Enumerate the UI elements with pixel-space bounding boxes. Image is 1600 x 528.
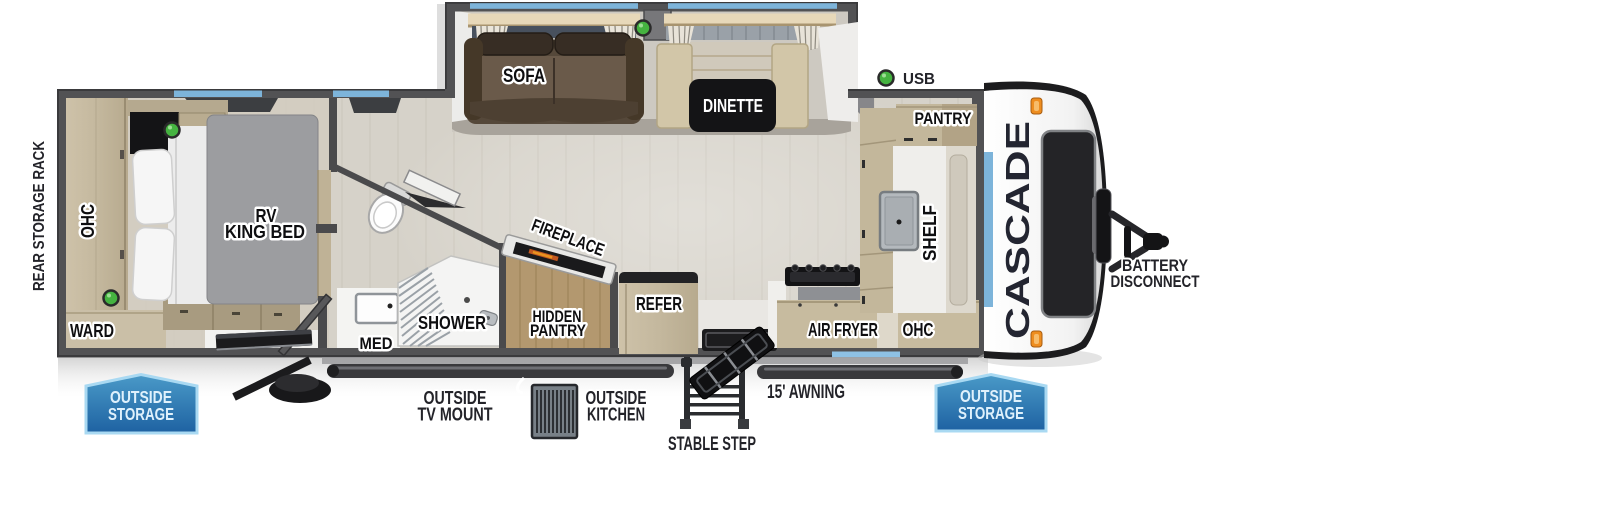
- svg-text:15' AWNING: 15' AWNING: [767, 382, 845, 403]
- svg-text:KITCHEN: KITCHEN: [587, 404, 645, 425]
- svg-text:TV MOUNT: TV MOUNT: [418, 404, 494, 425]
- svg-text:STORAGE: STORAGE: [108, 404, 174, 424]
- svg-text:CASCADE: CASCADE: [999, 121, 1036, 339]
- svg-text:PANTRY: PANTRY: [915, 110, 972, 128]
- svg-text:AIR FRYER: AIR FRYER: [808, 320, 878, 340]
- svg-text:STORAGE: STORAGE: [958, 403, 1024, 423]
- svg-text:SOFA: SOFA: [503, 66, 545, 87]
- svg-text:REFER: REFER: [636, 294, 682, 314]
- svg-text:MED: MED: [360, 334, 393, 353]
- svg-text:KING BED: KING BED: [225, 222, 305, 242]
- svg-text:SHOWER: SHOWER: [418, 312, 486, 333]
- svg-text:USB: USB: [903, 71, 935, 88]
- svg-text:OHC: OHC: [78, 204, 98, 238]
- svg-text:WARD: WARD: [70, 321, 114, 341]
- svg-text:DISCONNECT: DISCONNECT: [1111, 273, 1200, 291]
- svg-text:SHELF: SHELF: [920, 205, 940, 261]
- svg-text:PANTRY: PANTRY: [530, 321, 587, 340]
- svg-text:OHC: OHC: [903, 320, 934, 340]
- svg-text:DINETTE: DINETTE: [703, 95, 763, 116]
- svg-text:STABLE STEP: STABLE STEP: [668, 434, 756, 455]
- svg-text:REAR STORAGE RACK: REAR STORAGE RACK: [31, 141, 48, 291]
